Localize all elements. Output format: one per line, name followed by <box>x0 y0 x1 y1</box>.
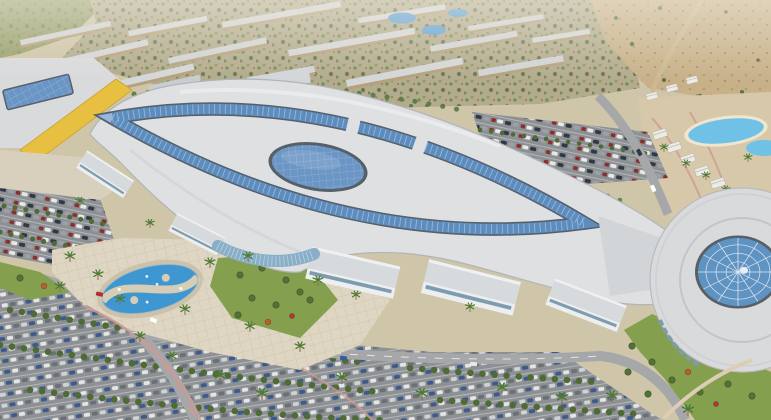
rendering-canvas <box>0 0 771 420</box>
haze-overlay <box>0 0 771 80</box>
